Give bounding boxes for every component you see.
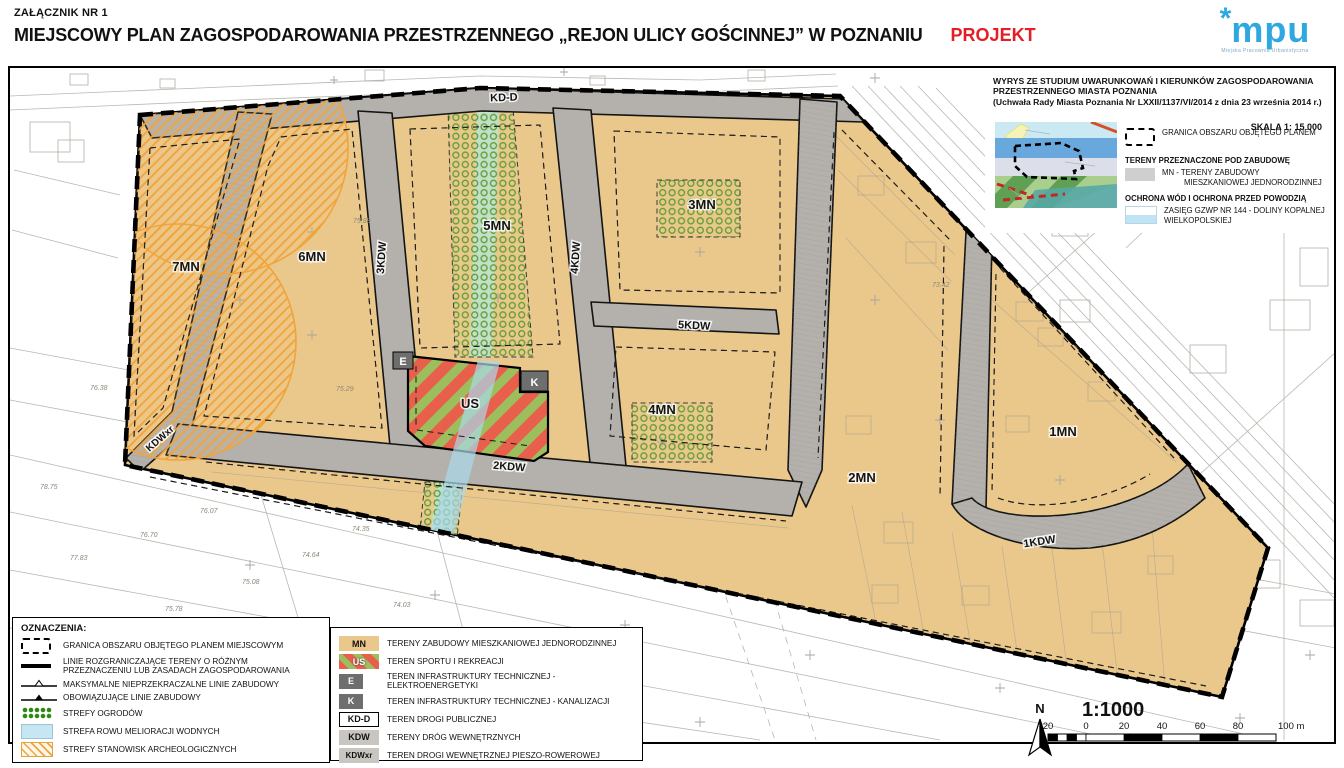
gzwp-swatch: [1125, 206, 1157, 224]
scalebar-area: N 1:1000 20 0 20 40 60 80 100 m: [1015, 690, 1305, 760]
svg-text:74.03: 74.03: [393, 602, 411, 609]
zone-label-4mn: 4MN: [648, 402, 675, 417]
inset-title-line2: PRZESTRZENNEGO MIASTA POZNANIA: [993, 86, 1157, 96]
road-label-5kdw: 5KDW: [678, 319, 712, 333]
scale-ticks: 20 0 20 40 60 80 100 m: [1043, 721, 1305, 732]
studium-inset-panel: WYRYS ZE STUDIUM UWARUNKOWAŃ I KIERUNKÓW…: [985, 70, 1334, 233]
zone-label-1mn: 1MN: [1049, 424, 1076, 439]
legend-item-mn: MN TERENY ZABUDOWY MIESZKANIOWEJ JEDNORO…: [339, 636, 634, 651]
svg-text:76.38: 76.38: [90, 385, 108, 392]
legend-item-ogrody: STREFY OGRODÓW: [21, 706, 321, 720]
us-code-swatch: US: [339, 654, 379, 669]
svg-text:76.70: 76.70: [140, 532, 158, 539]
legend-item-linie-rozgraniczajace: LINIE ROZGRANICZAJĄCE TERENY O RÓŻNYM PR…: [21, 657, 321, 676]
kdw-code-swatch: KDW: [339, 730, 379, 745]
boundary-dash-symbol: [21, 638, 51, 654]
inset-item-granica: GRANICA OBSZARU OBJĘTEGO PLANEM: [1125, 128, 1316, 146]
legend-item-granica: GRANICA OBSZARU OBJĘTEGO PLANEM MIEJSCOW…: [21, 638, 321, 654]
legend-item-kdwxr: KDWxr TEREN DROGI WEWNĘTRZNEJ PIESZO-ROW…: [339, 748, 634, 763]
badge-label-e: E: [399, 356, 406, 368]
legend-item-obowiazujace: OBOWIĄZUJĄCE LINIE ZABUDOWY: [21, 693, 321, 703]
legend-item-kdw: KDW TERENY DRÓG WEWNĘTRZNYCH: [339, 730, 634, 745]
svg-text:0: 0: [1083, 721, 1088, 732]
road-label-4kdw: 4KDW: [569, 241, 583, 275]
mpu-logo-caption: Miejska Pracownia Urbanistyczna: [1200, 49, 1330, 54]
legend-item-archeologia: STREFY STANOWISK ARCHEOLOGICZNYCH: [21, 742, 321, 757]
annex-label: ZAŁĄCZNIK NR 1: [14, 7, 108, 19]
svg-text:75.08: 75.08: [242, 579, 260, 586]
scale-bar: [1048, 734, 1276, 741]
e-code-swatch: E: [339, 674, 363, 689]
blue-strip-symbol: [21, 724, 53, 739]
svg-text:78.75: 78.75: [40, 484, 58, 491]
svg-text:20: 20: [1043, 721, 1054, 732]
studium-minimap: [995, 122, 1117, 208]
mpu-logo: *mpu Miejska Pracownia Urbanistyczna: [1200, 4, 1330, 54]
legend-item-k: K TEREN INFRASTRUKTURY TECHNICZNEJ - KAN…: [339, 694, 634, 709]
zone-label-5mn: 5MN: [483, 218, 510, 233]
zone-label-2mn: 2MN: [848, 470, 875, 485]
inset-title-line1: WYRYS ZE STUDIUM UWARUNKOWAŃ I KIERUNKÓW…: [993, 76, 1314, 86]
open-triangle-line-symbol: [21, 679, 63, 689]
boundary-swatch: [1125, 128, 1155, 146]
kdwxr-code-swatch: KDWxr: [339, 748, 379, 763]
badge-label-k: K: [531, 377, 539, 389]
svg-text:100 m: 100 m: [1278, 721, 1304, 732]
legend-item-e: E TEREN INFRASTRUKTURY TECHNICZNEJ - ELE…: [339, 672, 634, 691]
svg-text:60: 60: [1195, 721, 1206, 732]
filled-triangle-line-symbol: [21, 693, 63, 703]
legend-oznaczenia: OZNACZENIA: GRANICA OBSZARU OBJĘTEGO PLA…: [12, 617, 330, 763]
page-title: MIEJSCOWY PLAN ZAGOSPODAROWANIA PRZESTRZ…: [14, 25, 923, 45]
scale-ratio: 1:1000: [1082, 699, 1144, 721]
svg-text:40: 40: [1157, 721, 1168, 732]
inset-header-ochrona: OCHRONA WÓD I OCHRONA PRZED POWODZIĄ: [1125, 194, 1306, 203]
zone-label-6mn: 6MN: [298, 249, 325, 264]
asterisk-icon: *: [1220, 2, 1232, 35]
mn-code-swatch: MN: [339, 636, 379, 651]
garden-dots-symbol: [21, 706, 63, 720]
svg-text:75.88: 75.88: [353, 218, 371, 225]
k-code-swatch: K: [339, 694, 363, 709]
inset-header-zabudowa: TERENY PRZEZNACZONE POD ZABUDOWĘ: [1125, 156, 1290, 165]
svg-text:80: 80: [1233, 721, 1244, 732]
road-label-3kdw: 3KDW: [375, 241, 389, 275]
kdd-code-swatch: KD-D: [339, 712, 379, 727]
legend-codes: MN TERENY ZABUDOWY MIESZKANIOWEJ JEDNORO…: [330, 627, 643, 761]
page-title-row: MIEJSCOWY PLAN ZAGOSPODAROWANIA PRZESTRZ…: [14, 25, 1036, 46]
mpu-logo-mark: *mpu: [1200, 4, 1330, 48]
thick-line-symbol: [21, 664, 51, 668]
mn-swatch: [1125, 168, 1155, 181]
svg-text:74.35: 74.35: [352, 526, 370, 533]
inset-item-gzwp: ZASIĘG GZWP NR 144 - DOLINY KOPALNEJ WIE…: [1125, 206, 1325, 225]
arch-hatch-symbol: [21, 742, 53, 757]
legend-item-us: US TEREN SPORTU I REKREACJI: [339, 654, 634, 669]
inset-title-line3: (Uchwała Rady Miasta Poznania Nr LXXII/1…: [993, 97, 1322, 107]
svg-text:75.78: 75.78: [165, 606, 183, 613]
north-label: N: [1035, 701, 1044, 716]
svg-text:74.64: 74.64: [302, 552, 320, 559]
legend-item-melioracja: STREFA ROWU MELIORACJI WODNYCH: [21, 724, 321, 739]
svg-text:75.29: 75.29: [336, 386, 354, 393]
road-label-kdd: KD-D: [490, 92, 518, 105]
svg-text:73.42: 73.42: [932, 282, 950, 289]
svg-text:77.83: 77.83: [70, 555, 88, 562]
legend-item-nieprzekraczalne: MAKSYMALNE NIEPRZEKRACZALNE LINIE ZABUDO…: [21, 679, 321, 689]
legend-title: OZNACZENIA:: [21, 623, 321, 634]
zone-label-3mn: 3MN: [688, 197, 715, 212]
zone-label-us: US: [461, 396, 479, 411]
inset-item-mn: MN - TERENY ZABUDOWY MIESZKANIOWEJ JEDNO…: [1125, 168, 1322, 187]
svg-text:76.07: 76.07: [200, 508, 219, 515]
svg-text:20: 20: [1119, 721, 1130, 732]
legend-item-kdd: KD-D TEREN DROGI PUBLICZNEJ: [339, 712, 634, 727]
status-badge: PROJEKT: [951, 25, 1036, 45]
zone-label-7mn: 7MN: [172, 259, 199, 274]
